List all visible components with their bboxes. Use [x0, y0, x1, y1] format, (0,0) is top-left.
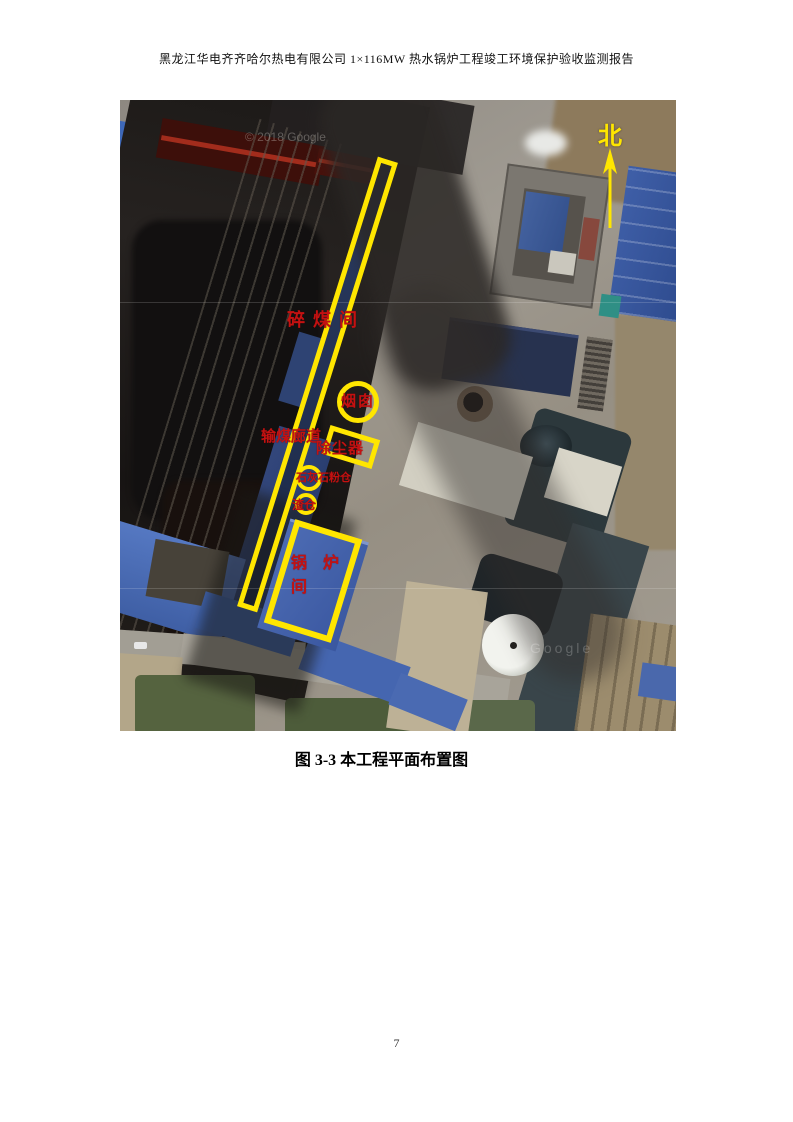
label-boiler-line1: 锅 炉	[291, 552, 339, 576]
figure-caption: 图 3-3 本工程平面布置图	[0, 746, 763, 770]
north-indicator: 北	[590, 116, 630, 236]
truss-structure	[577, 337, 613, 412]
report-header: 黑龙江华电齐齐哈尔热电有限公司 1×116MW 热水锅炉工程竣工环境保护验收监测…	[0, 50, 793, 67]
label-coal-corridor: 输煤廊道	[261, 425, 321, 446]
label-boiler-line2: 间	[291, 576, 307, 600]
label-crusher-room: 碎煤间	[287, 306, 365, 332]
blue-roof-building	[518, 191, 570, 255]
label-stack: 烟囱	[341, 390, 375, 411]
blue-roof	[638, 662, 676, 701]
north-arrow-icon	[599, 148, 621, 230]
parked-car	[134, 642, 147, 649]
label-slag-silo: 渣仓	[292, 496, 316, 513]
page-number: 7	[0, 1036, 793, 1051]
teal-roof	[599, 294, 622, 319]
label-limestone-silo: 石灰石粉仓	[296, 469, 351, 485]
label-dust-collector: 除尘器	[316, 437, 364, 458]
tank-vent	[510, 642, 517, 649]
imagery-watermark: Google	[530, 640, 593, 656]
white-roof-section	[548, 250, 577, 275]
scan-line	[120, 588, 676, 589]
north-label: 北	[590, 116, 630, 151]
site-plan-photo: © 2018 Google Google 碎煤间 烟囱 输煤廊道 除尘器 石灰石…	[120, 100, 676, 731]
scan-line	[120, 302, 676, 303]
imagery-watermark: © 2018 Google	[245, 130, 326, 144]
steam-plume	[525, 130, 567, 156]
